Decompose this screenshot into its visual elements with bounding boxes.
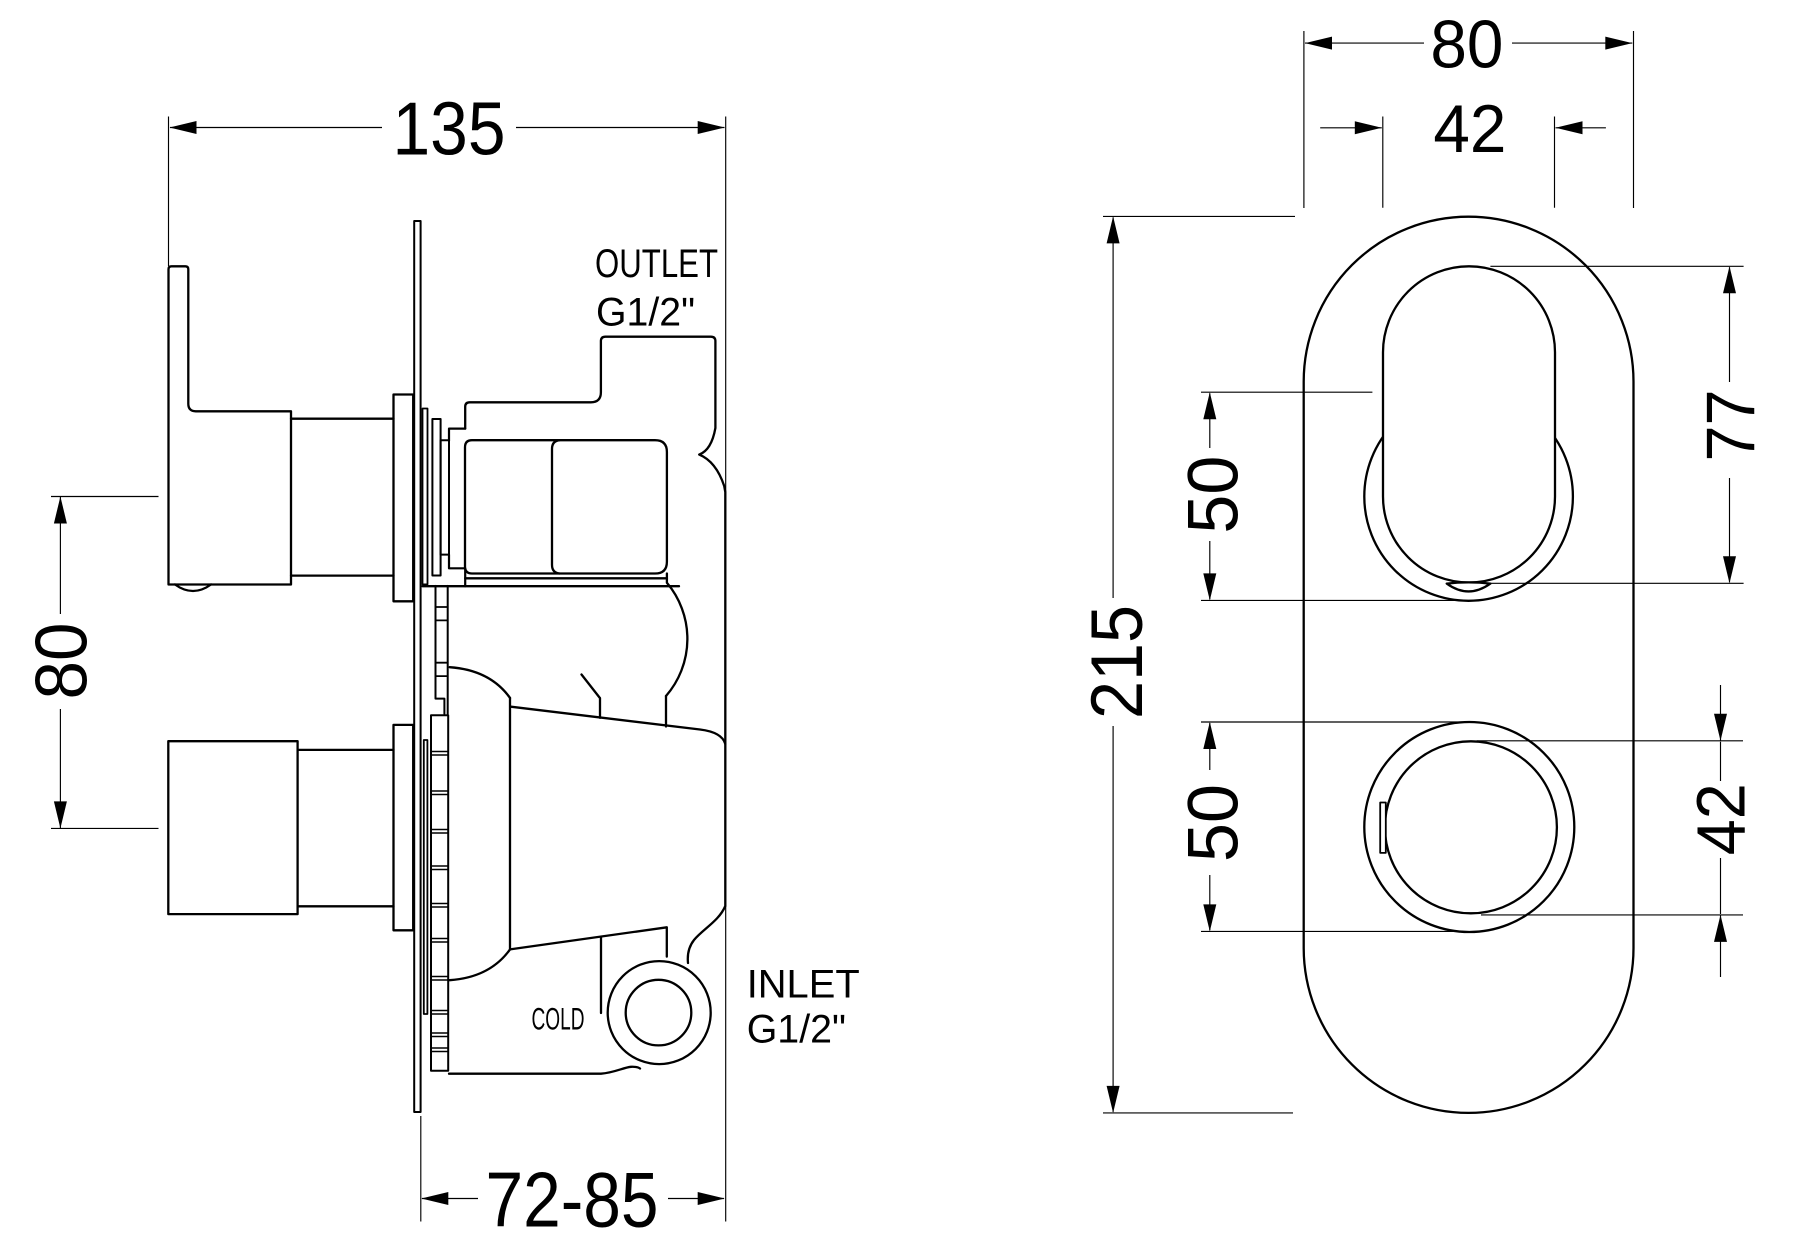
svg-text:G1/2": G1/2" (596, 291, 695, 335)
svg-text:50: 50 (1174, 456, 1253, 534)
svg-text:80: 80 (1430, 6, 1503, 82)
svg-text:77: 77 (1692, 390, 1769, 462)
svg-text:42: 42 (1683, 783, 1760, 855)
svg-text:OUTLET: OUTLET (595, 242, 718, 286)
svg-text:G1/2": G1/2" (747, 1008, 846, 1052)
svg-text:80: 80 (22, 623, 103, 700)
svg-text:42: 42 (1433, 91, 1506, 167)
svg-text:COLD: COLD (532, 1001, 585, 1037)
svg-text:215: 215 (1077, 605, 1158, 719)
svg-text:50: 50 (1174, 784, 1253, 862)
svg-text:72-85: 72-85 (486, 1155, 659, 1243)
svg-text:135: 135 (393, 86, 506, 170)
svg-text:INLET: INLET (747, 963, 860, 1007)
